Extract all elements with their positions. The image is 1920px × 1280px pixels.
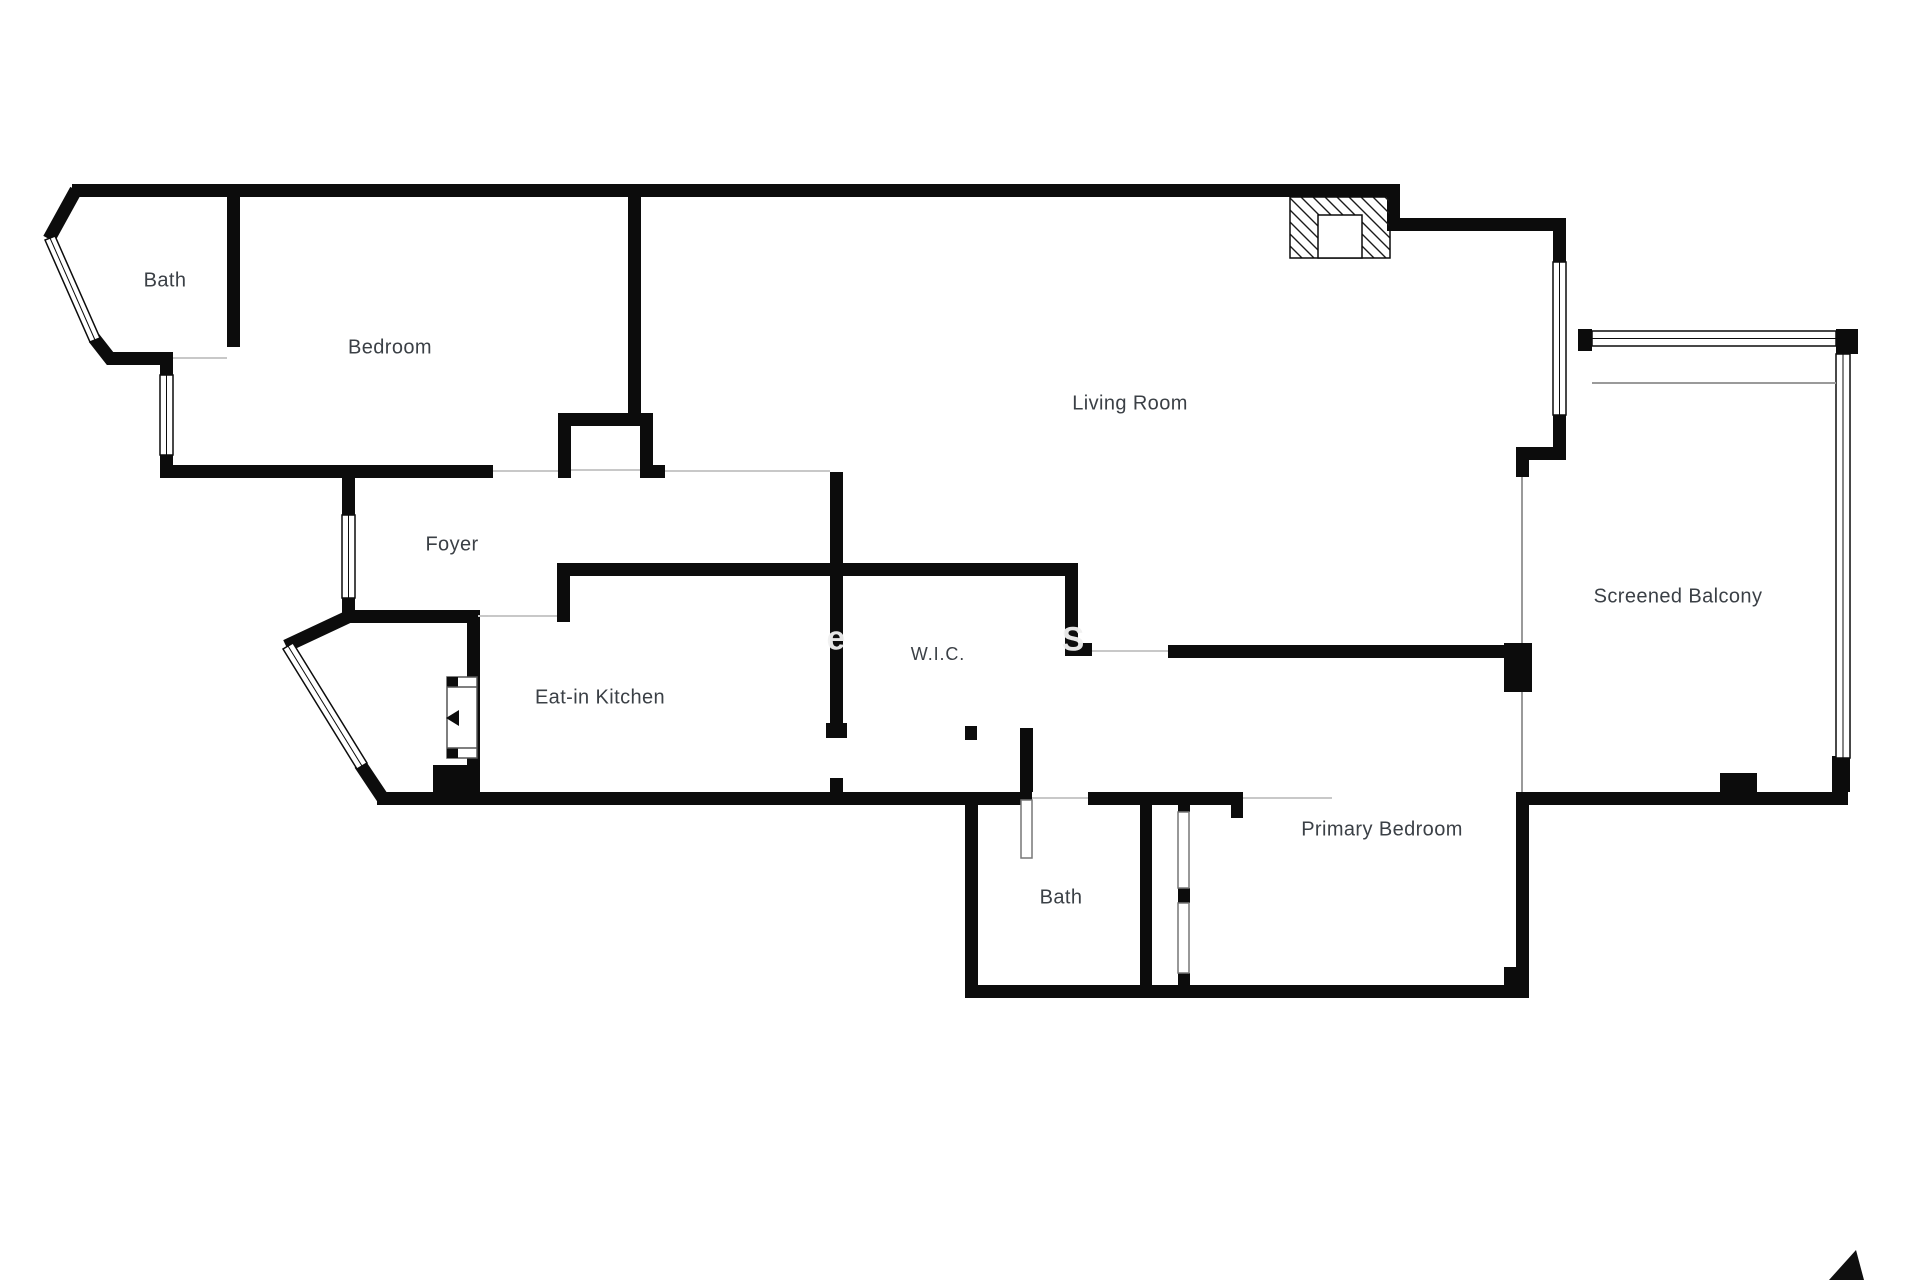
room-label-primary-bedroom: Primary Bedroom — [1301, 818, 1463, 843]
watermark-letter: S — [1062, 621, 1085, 660]
window-west-upper — [160, 375, 173, 455]
windows — [45, 236, 1850, 769]
window-living-east — [1553, 262, 1566, 415]
bath-bay-walls — [49, 190, 112, 361]
window-foyer-west — [342, 515, 355, 598]
watermark-letter: e — [827, 620, 846, 659]
bath-door-leaf — [1021, 800, 1032, 858]
chimney-hatch-block — [1290, 197, 1390, 258]
room-label-bath-lower: Bath — [1040, 886, 1083, 911]
appliance-symbol — [446, 677, 477, 758]
room-label-eat-in-kitchen: Eat-in Kitchen — [535, 686, 665, 711]
window-balcony-east — [1836, 354, 1850, 758]
room-label-screened-balcony: Screened Balcony — [1594, 585, 1763, 610]
room-label-bedroom: Bedroom — [348, 336, 432, 361]
room-label-living-room: Living Room — [1072, 392, 1188, 417]
window-balcony-north — [1592, 331, 1836, 346]
floorplan-drawing — [0, 0, 1920, 1280]
floorplan-page: Bath Bedroom Living Room Foyer Eat-in Ki… — [0, 0, 1920, 1280]
room-label-foyer: Foyer — [425, 533, 478, 558]
bay-window-bath — [45, 236, 100, 342]
corner-logo-triangle-icon — [1829, 1250, 1864, 1280]
foyer-bay-walls — [286, 616, 384, 800]
room-label-wic: W.I.C. — [911, 643, 965, 666]
walls — [72, 184, 1858, 998]
bay-window-foyer — [283, 643, 367, 769]
room-label-bath-upper: Bath — [144, 269, 187, 294]
